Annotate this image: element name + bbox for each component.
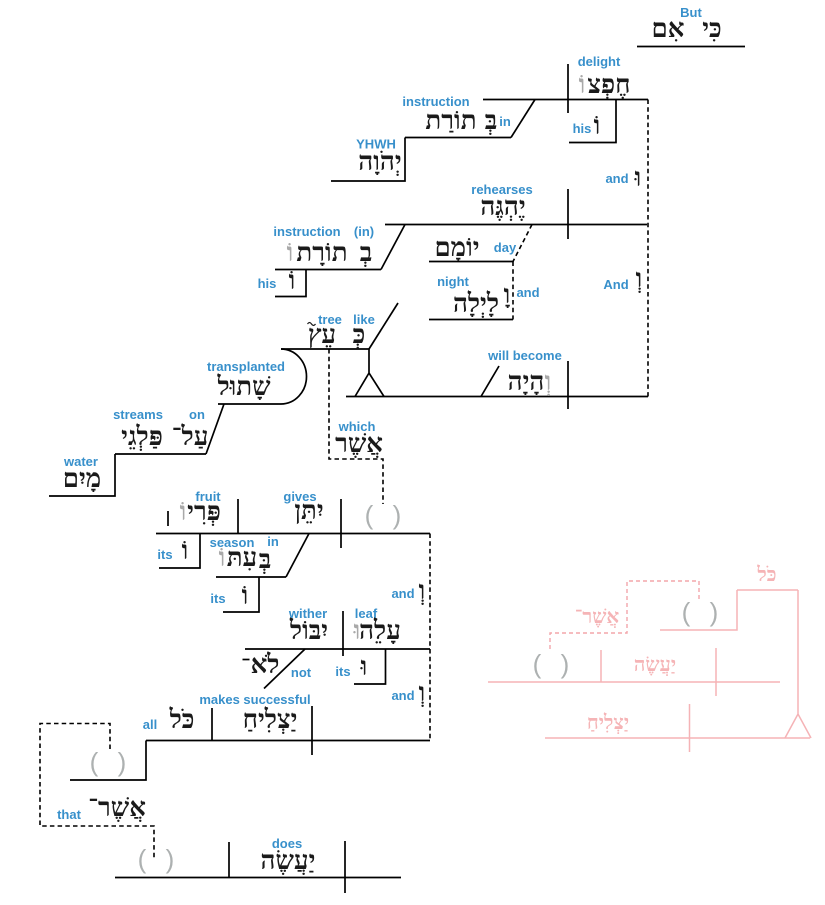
svg-text:וְ: וְ xyxy=(419,576,426,605)
svg-text:כִּי: כִּי xyxy=(702,14,722,43)
svg-text:its: its xyxy=(157,547,172,562)
svg-text:כֹּל: כֹּל xyxy=(756,564,776,586)
svg-text:וְ: וְ xyxy=(545,367,552,396)
svg-text:פְּרִי: פְּרִי xyxy=(187,497,221,526)
svg-text:יַצְלִיחַ: יַצְלִיחַ xyxy=(243,705,298,734)
svg-text:שָׁתוּל: שָׁתוּל xyxy=(216,372,271,401)
svg-text:וָ: וָ xyxy=(504,280,511,309)
svg-text:עִתּ: עִתּ xyxy=(227,543,258,572)
svg-text:instruction: instruction xyxy=(273,224,340,239)
svg-text:בְּ: בְּ xyxy=(259,545,272,574)
svg-text:his: his xyxy=(258,276,277,291)
svg-text:all: all xyxy=(143,717,157,732)
svg-text:in: in xyxy=(499,114,511,129)
svg-text:יַצְלִיחַ: יַצְלִיחַ xyxy=(587,712,629,734)
svg-text:): ) xyxy=(166,844,175,874)
svg-text:וּ: וּ xyxy=(634,163,642,192)
svg-text:): ) xyxy=(393,500,402,530)
svg-text:לֹא: לֹא xyxy=(251,650,280,679)
svg-text:וֹ: וֹ xyxy=(219,543,226,572)
svg-text:): ) xyxy=(118,747,127,777)
svg-text:): ) xyxy=(710,597,719,627)
svg-text:מָיִם: מָיִם xyxy=(63,464,101,493)
svg-text:(: ( xyxy=(533,649,542,679)
svg-text:night: night xyxy=(437,274,469,289)
svg-text:(: ( xyxy=(138,844,147,874)
svg-text:יִתֵּן: יִתֵּן xyxy=(294,496,323,525)
svg-text:(in): (in) xyxy=(354,224,374,239)
svg-text:and: and xyxy=(391,688,414,703)
svg-text:וֹ: וֹ xyxy=(182,536,189,565)
svg-text:וְ: וְ xyxy=(636,264,643,293)
svg-text:וֹ: וֹ xyxy=(287,238,294,267)
svg-text:עָלֵה: עָלֵה xyxy=(359,616,401,645)
svg-text:its: its xyxy=(335,664,350,679)
svg-text:delight: delight xyxy=(578,54,621,69)
svg-text:וּ: וּ xyxy=(360,652,368,681)
svg-text:וֹ: וֹ xyxy=(289,266,296,295)
svg-text:יְהֹוָה: יְהֹוָה xyxy=(358,147,401,176)
svg-text:streams: streams xyxy=(113,407,163,422)
svg-text:day: day xyxy=(494,240,517,255)
svg-text:וְ: וְ xyxy=(419,678,426,707)
svg-text:כֹּל: כֹּל xyxy=(169,705,195,734)
svg-text:אֲשֶׁר: אֲשֶׁר xyxy=(335,429,383,458)
svg-text:וּ: וּ xyxy=(353,616,361,645)
svg-text:אֲשֶׁר־: אֲשֶׁר־ xyxy=(575,606,620,628)
svg-text:חֶפְצ: חֶפְצ xyxy=(587,70,630,99)
svg-text:תוֹרַת: תוֹרַת xyxy=(425,106,476,135)
svg-text:וֹ: וֹ xyxy=(594,111,601,140)
svg-text:): ) xyxy=(561,649,570,679)
svg-text:יִבּוֹל: יִבּוֹל xyxy=(289,616,328,645)
svg-text:וֹ: וֹ xyxy=(180,497,187,526)
svg-text:וֹ: וֹ xyxy=(242,581,249,610)
svg-text:עַל־: עַל־ xyxy=(172,422,209,451)
svg-text:תוֹרָת: תוֹרָת xyxy=(296,238,347,267)
svg-text:and: and xyxy=(605,171,628,186)
svg-text:הָיָה: הָיָה xyxy=(508,367,545,396)
svg-text:וֹ: וֹ xyxy=(579,70,586,99)
svg-text:בְּ: בְּ xyxy=(485,106,498,135)
svg-text:that: that xyxy=(57,807,82,822)
svg-text:פַּלְגֵי: פַּלְגֵי xyxy=(121,422,163,451)
svg-text:יוֹמָם: יוֹמָם xyxy=(434,233,479,262)
svg-text:and: and xyxy=(516,285,539,300)
svg-text:יַעֲשֶׂה: יַעֲשֶׂה xyxy=(261,846,316,875)
svg-text:on: on xyxy=(189,407,205,422)
svg-text:will become: will become xyxy=(487,348,562,363)
svg-text:And: And xyxy=(603,277,628,292)
svg-text:(: ( xyxy=(682,597,691,627)
svg-text:יַעֲשֶׂה: יַעֲשֶׂה xyxy=(634,654,676,676)
svg-text:(: ( xyxy=(90,747,99,777)
svg-text:and: and xyxy=(391,586,414,601)
svg-text:בְ: בְ xyxy=(360,238,373,267)
svg-text:אִם: אִם xyxy=(652,14,685,43)
svg-text:(: ( xyxy=(365,500,374,530)
svg-text:יֶהְגֶּה: יֶהְגֶּה xyxy=(480,192,525,221)
svg-text:אֲשֶׁר־: אֲשֶׁר־ xyxy=(88,793,146,822)
svg-text:his: his xyxy=(573,121,592,136)
svg-text:לָיְלָה: לָיְלָה xyxy=(453,289,499,318)
svg-text:its: its xyxy=(210,591,225,606)
svg-text:כְּ: כְּ xyxy=(353,320,366,349)
svg-text:not: not xyxy=(291,665,312,680)
